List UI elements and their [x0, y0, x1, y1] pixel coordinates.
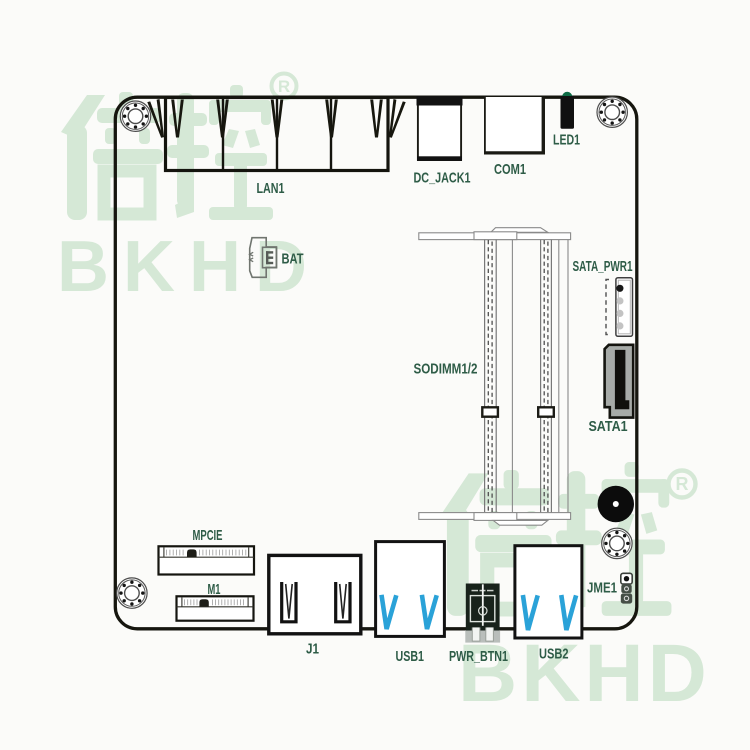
svg-text:MPCIE: MPCIE	[193, 527, 223, 544]
svg-text:R: R	[278, 77, 290, 96]
svg-text:DC_JACK1: DC_JACK1	[414, 170, 471, 187]
svg-text:LED1: LED1	[553, 132, 580, 149]
svg-text:SODIMM1/2: SODIMM1/2	[414, 361, 478, 378]
svg-text:J1: J1	[306, 641, 319, 658]
svg-text:SATA1: SATA1	[589, 418, 628, 435]
svg-text:LAN1: LAN1	[257, 180, 285, 197]
svg-text:USB2: USB2	[539, 646, 569, 663]
svg-text:JME1: JME1	[587, 580, 617, 597]
svg-text:R: R	[676, 474, 689, 494]
svg-text:PWR_BTN1: PWR_BTN1	[449, 648, 508, 665]
svg-text:SATA_PWR1: SATA_PWR1	[573, 258, 633, 275]
svg-text:BAT: BAT	[282, 251, 304, 268]
svg-text:USB1: USB1	[396, 648, 425, 665]
svg-text:COM1: COM1	[494, 161, 526, 178]
